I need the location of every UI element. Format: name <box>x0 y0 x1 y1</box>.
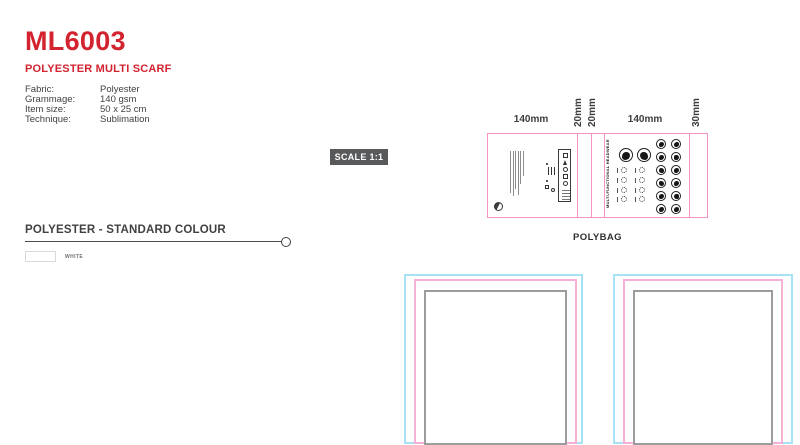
origin-icon <box>545 185 549 189</box>
usage-pictogram-icon <box>621 196 627 202</box>
print-template-cutline <box>404 274 583 444</box>
bleach-icon <box>563 160 567 165</box>
product-name: POLYESTER MULTI SCARF <box>25 63 172 75</box>
colour-swatch-white <box>25 251 56 262</box>
care-microtext <box>562 190 570 191</box>
rule-end-circle <box>281 237 291 247</box>
usage-pictogram-icon <box>656 165 666 175</box>
usage-pictogram-icon <box>656 204 666 214</box>
care-microtext <box>562 193 570 194</box>
pictogram-glyph <box>674 181 679 186</box>
pictogram-glyph <box>674 168 679 173</box>
origin-icon <box>551 188 555 192</box>
usage-pictogram-icon <box>671 152 681 162</box>
pictogram-glyph <box>659 194 664 199</box>
microtext-line <box>515 151 516 189</box>
spec-row-technique: Technique: Sublimation <box>25 115 150 125</box>
swatch-label: WHITE <box>65 254 83 260</box>
size-mark <box>548 167 549 175</box>
care-microtext <box>562 196 570 197</box>
usage-pictogram-icon <box>637 148 651 162</box>
pictogram-glyph <box>640 152 648 160</box>
care-instruction-box <box>558 149 571 202</box>
panel-title-vertical: MULTI-FUNCTIONAL HEADWEAR <box>605 150 610 208</box>
pictogram-caption-mark <box>635 168 636 173</box>
fold-line <box>689 134 690 217</box>
fold-line <box>591 134 592 217</box>
pictogram-caption-mark <box>635 178 636 183</box>
microtext-line <box>520 151 521 184</box>
section-rule <box>25 241 282 242</box>
pictogram-caption-mark <box>635 188 636 193</box>
usage-pictogram-icon <box>671 178 681 188</box>
dimension-label: 20mm <box>573 93 584 127</box>
iron-icon <box>563 174 568 179</box>
pictogram-glyph <box>674 155 679 160</box>
pictogram-caption-mark <box>617 197 618 202</box>
dry-clean-icon <box>563 181 568 186</box>
pictogram-glyph <box>659 207 664 212</box>
scale-badge: SCALE 1:1 <box>330 149 388 165</box>
size-mark <box>554 167 555 175</box>
pictogram-caption-mark <box>617 168 618 173</box>
print-template-safe-area <box>633 290 773 445</box>
usage-pictogram-icon <box>639 196 645 202</box>
care-microtext <box>562 199 570 200</box>
print-template-bleed <box>623 279 783 444</box>
dimension-label: 20mm <box>587 93 598 127</box>
print-template-bleed <box>414 279 577 444</box>
print-template-safe-area <box>424 290 567 445</box>
polybag-caption: POLYBAG <box>487 232 708 243</box>
tumble-dry-icon <box>563 167 568 172</box>
microtext-line <box>518 151 519 195</box>
pictogram-glyph <box>674 142 679 147</box>
microtext-line <box>513 151 514 196</box>
pictogram-caption-mark <box>617 188 618 193</box>
dimension-label: 140mm <box>509 114 553 125</box>
pictogram-glyph <box>659 168 664 173</box>
recycle-icon <box>494 202 503 211</box>
spec-label: Technique: <box>25 115 100 125</box>
usage-pictogram-icon <box>656 139 666 149</box>
print-template-cutline <box>613 274 793 444</box>
size-mark <box>551 167 552 175</box>
pictogram-glyph <box>659 155 664 160</box>
pictogram-glyph <box>659 181 664 186</box>
usage-pictogram-icon <box>656 191 666 201</box>
usage-pictogram-icon <box>621 187 627 193</box>
pictogram-caption-mark <box>617 178 618 183</box>
usage-pictogram-icon <box>619 148 633 162</box>
microtext-line <box>510 151 511 193</box>
pictogram-glyph <box>674 194 679 199</box>
usage-pictogram-icon <box>671 165 681 175</box>
product-code: ML6003 <box>25 26 126 57</box>
usage-pictogram-icon <box>656 152 666 162</box>
pictogram-glyph <box>659 142 664 147</box>
pictogram-caption-mark <box>635 197 636 202</box>
usage-pictogram-icon <box>639 187 645 193</box>
usage-pictogram-icon <box>671 204 681 214</box>
microtext-line <box>523 151 524 176</box>
pictogram-glyph <box>622 152 630 160</box>
colour-section-title: POLYESTER - STANDARD COLOUR <box>25 224 226 236</box>
usage-pictogram-icon <box>639 167 645 173</box>
spec-value: Sublimation <box>100 115 150 125</box>
spec-list: Fabric: Polyester Grammage: 140 gsm Item… <box>25 85 150 125</box>
dimension-label: 30mm <box>691 93 702 127</box>
pictogram-glyph <box>674 207 679 212</box>
usage-pictogram-icon <box>671 191 681 201</box>
wash-icon <box>563 153 568 158</box>
fold-line <box>577 134 578 217</box>
usage-pictogram-icon <box>656 178 666 188</box>
usage-pictogram-icon <box>621 167 627 173</box>
usage-pictogram-icon <box>621 177 627 183</box>
dimension-label: 140mm <box>623 114 667 125</box>
usage-pictogram-icon <box>671 139 681 149</box>
usage-pictogram-icon <box>639 177 645 183</box>
